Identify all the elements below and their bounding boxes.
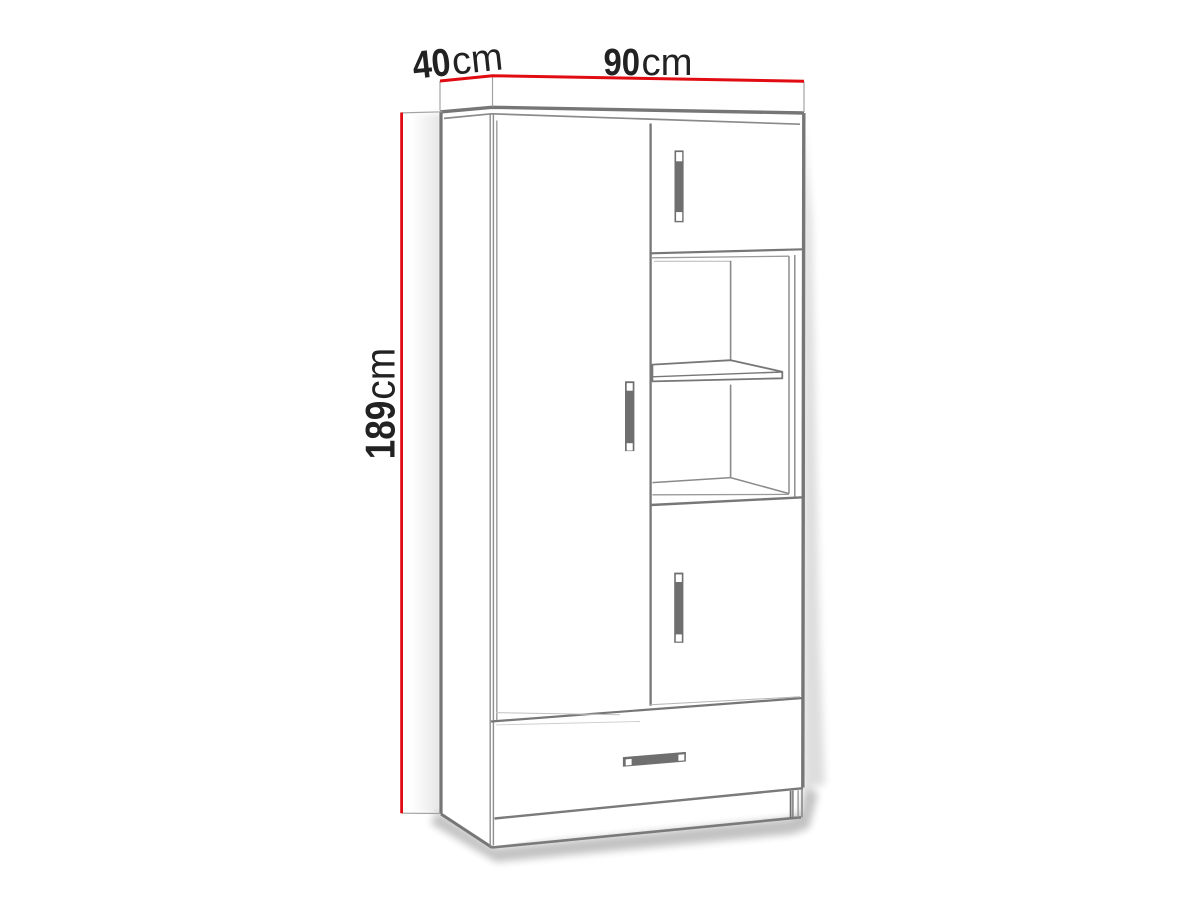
svg-text:40cm: 40cm <box>410 36 504 88</box>
svg-text:90cm: 90cm <box>604 42 693 84</box>
svg-text:189cm: 189cm <box>356 348 403 460</box>
